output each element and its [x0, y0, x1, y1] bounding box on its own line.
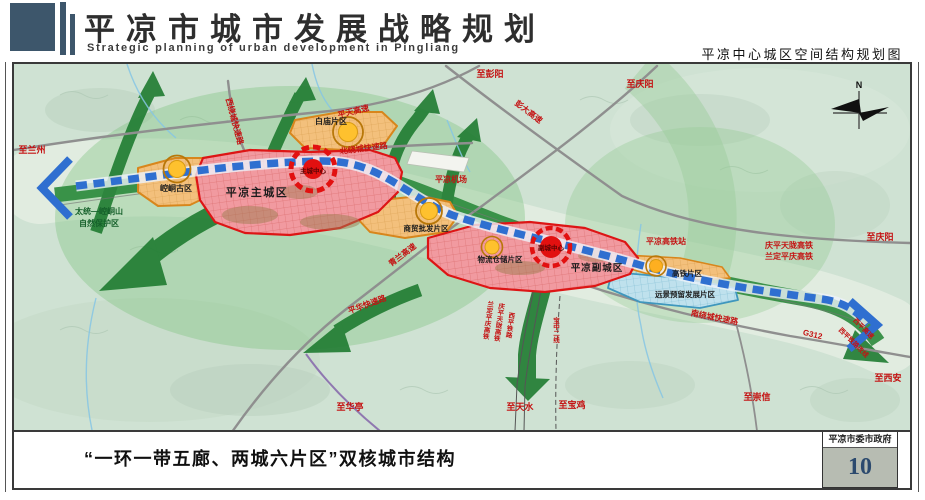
label-nature-reserve-2: 自然保护区	[79, 218, 119, 228]
header-accent-square	[10, 3, 55, 51]
label-area-sub-city: 平凉副城区	[571, 262, 624, 274]
map-figure: N 至兰州 至彭阳 至庆阳 至庆阳 至西安 至崇信 至华亭 至天水 至宝鸡 太统…	[14, 64, 910, 430]
label-area-yuanjing: 远景预留发展片区	[655, 289, 715, 299]
organization-label: 平凉市委市政府	[823, 432, 897, 448]
planning-map: N 至兰州 至彭阳 至庆阳 至庆阳 至西安 至崇信 至华亭 至天水 至宝鸡 太统…	[12, 62, 912, 432]
label-to-qingyang-right: 至庆阳	[866, 231, 893, 242]
label-main-center: 主城中心	[300, 166, 327, 175]
label-to-xian: 至西安	[874, 372, 901, 383]
header-accent-bar-1	[60, 2, 66, 55]
label-area-wuliu: 物流仓储片区	[478, 254, 523, 264]
label-to-lanzhou: 至兰州	[18, 144, 45, 155]
label-nature-reserve-1: 太统—崆峒山	[74, 206, 123, 216]
label-to-baoji: 至宝鸡	[558, 399, 585, 410]
label-rail-qptl: 庆平天陇高铁	[764, 240, 813, 250]
label-area-baimiao: 白庙片区	[315, 116, 347, 126]
page-header: 平凉市城市发展战略规划 Strategic planning of urban …	[0, 0, 925, 62]
label-rail-ldpq: 兰定平庆高铁	[765, 251, 813, 261]
label-area-gaotie: 高铁片区	[672, 268, 702, 278]
page-subtitle-en: Strategic planning of urban development …	[87, 42, 460, 54]
left-frame-line	[5, 62, 6, 492]
page-number: 10	[823, 448, 897, 487]
compass-north-label: N	[856, 80, 863, 90]
label-sub-center: 副城中心	[538, 243, 565, 252]
structure-caption: “一环一带五廊、两城六片区”双核城市结构	[84, 445, 456, 471]
map-sheet-title: 平凉中心城区空间结构规划图	[701, 44, 903, 63]
label-to-chongxin: 至崇信	[743, 391, 770, 402]
right-frame-line	[918, 62, 919, 492]
label-area-kongtong: 崆峒古区	[160, 183, 192, 193]
caption-bar: “一环一带五廊、两城六片区”双核城市结构 平凉市委市政府 10	[12, 432, 912, 490]
label-area-shangmao: 商贸批发片区	[404, 223, 449, 233]
label-to-qingyang-top: 至庆阳	[626, 78, 653, 89]
label-to-huating: 至华亭	[336, 401, 363, 412]
header-accent-bar-2	[70, 14, 75, 55]
label-area-main-city: 平凉主城区	[226, 185, 289, 199]
label-to-pengyang: 至彭阳	[476, 68, 503, 79]
label-to-tianshui: 至天水	[506, 401, 534, 412]
page-number-box: 平凉市委市政府 10	[822, 432, 898, 488]
label-airport: 平凉机场	[435, 174, 467, 184]
label-hsr-station: 平凉高铁站	[646, 236, 686, 246]
